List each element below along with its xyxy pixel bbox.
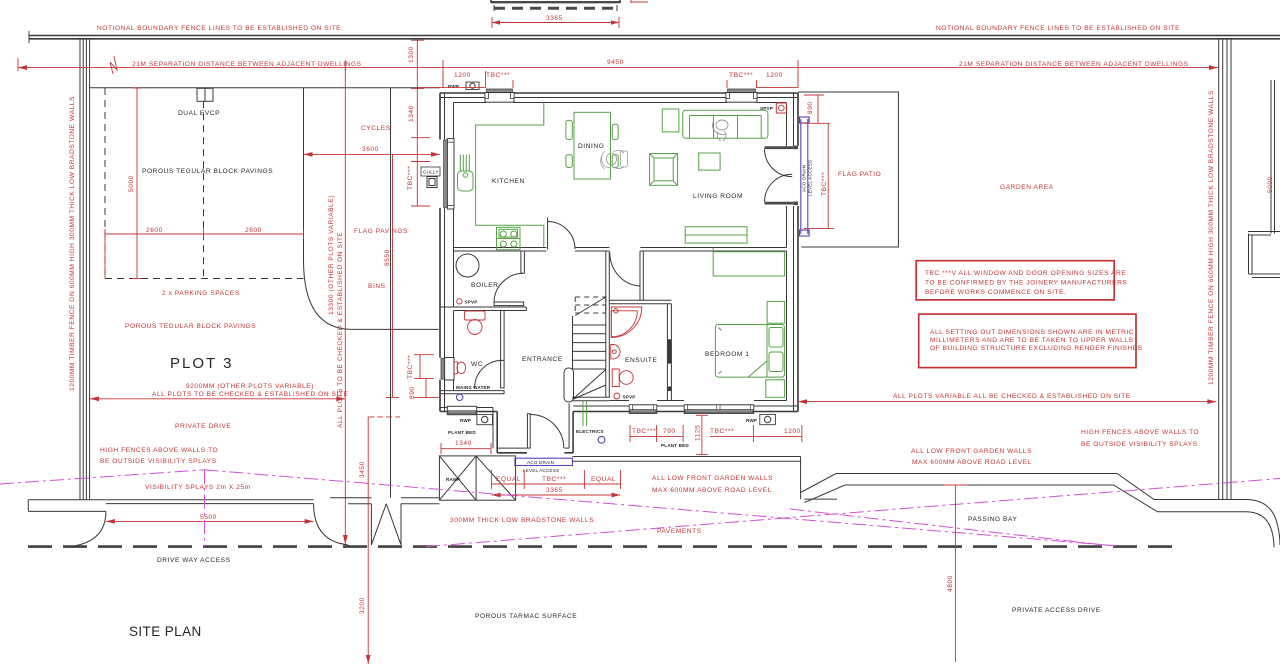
svg-text:1340: 1340 xyxy=(455,440,472,447)
svg-text:SITE PLAN: SITE PLAN xyxy=(129,624,202,639)
svg-text:9200MM (OTHER PLOTS VARIABL: 9200MM (OTHER PLOTS VARIABLE) xyxy=(186,383,314,390)
svg-text:NOTIONAL BOUNDARY FENCE LINES: NOTIONAL BOUNDARY FENCE LINES TO BE ESTA… xyxy=(97,25,341,32)
svg-text:BOILER: BOILER xyxy=(471,282,499,289)
svg-text:ALL LOW FRONT GARDEN WALLS: ALL LOW FRONT GARDEN WALLS xyxy=(911,448,1032,455)
svg-text:3365: 3365 xyxy=(546,487,563,494)
svg-text:TBC***: TBC*** xyxy=(407,166,414,190)
svg-text:ALL PLOTS VARIABLE ALL BE: ALL PLOTS VARIABLE ALL BE CHECKED & ESTA… xyxy=(893,393,1131,400)
svg-text:POROUS TARMAC SURFACE: POROUS TARMAC SURFACE xyxy=(475,613,577,620)
svg-text:EQUAL: EQUAL xyxy=(591,476,616,483)
svg-text:4800: 4800 xyxy=(947,575,954,592)
svg-text:TBC***: TBC*** xyxy=(542,476,566,483)
svg-text:890: 890 xyxy=(807,101,814,114)
svg-text:SPVP: SPVP xyxy=(623,395,636,400)
svg-text:ACO DRAIN: ACO DRAIN xyxy=(527,460,554,465)
svg-text:KITCHEN: KITCHEN xyxy=(492,178,525,185)
svg-text:ENTRANCE: ENTRANCE xyxy=(522,356,563,363)
svg-text:ALL PLOTS TO BE CHECKED &: ALL PLOTS TO BE CHECKED & ESTABLISHED ON… xyxy=(152,391,348,398)
svg-text:GARDEN AREA: GARDEN AREA xyxy=(1000,184,1054,191)
svg-text:ACO DRAIN: ACO DRAIN xyxy=(802,165,807,192)
svg-text:POROUS TEGULAR BLOCK PAVINGS: POROUS TEGULAR BLOCK PAVINGS xyxy=(125,323,256,330)
svg-text:EQUAL: EQUAL xyxy=(496,476,521,483)
svg-text:3600: 3600 xyxy=(362,146,379,153)
svg-text:LIVING ROOM: LIVING ROOM xyxy=(693,193,743,200)
svg-text:DRIVE WAY ACCESS: DRIVE WAY ACCESS xyxy=(157,557,231,564)
svg-text:VISIBILITY SPLAYS 2m X 25m: VISIBILITY SPLAYS 2m X 25m xyxy=(145,484,251,491)
svg-text:5000: 5000 xyxy=(1267,176,1274,193)
svg-text:ALL SETTING OUT DIMENSIONS: ALL SETTING OUT DIMENSIONS SHOWN ARE IN … xyxy=(930,329,1134,336)
svg-text:ENSUITE: ENSUITE xyxy=(625,357,657,364)
svg-text:BE OUTSIDE VISIBILITY SPLAYS: BE OUTSIDE VISIBILITY SPLAYS xyxy=(100,458,217,465)
svg-text:TBC***: TBC*** xyxy=(632,428,656,435)
svg-text:LEVEL ACCESS: LEVEL ACCESS xyxy=(808,160,813,196)
svg-text:RWP: RWP xyxy=(460,418,471,423)
svg-text:3450: 3450 xyxy=(359,461,366,478)
svg-text:9450: 9450 xyxy=(607,59,624,66)
svg-text:TO BE CONFIRMED BY THE JO: TO BE CONFIRMED BY THE JOINERY MANUFACTU… xyxy=(925,280,1127,287)
svg-text:1200: 1200 xyxy=(784,428,801,435)
svg-text:1200: 1200 xyxy=(454,72,471,79)
svg-text:FLAG PAVINGS: FLAG PAVINGS xyxy=(354,228,408,235)
svg-text:5000: 5000 xyxy=(128,175,135,192)
svg-text:PAVEMENTS: PAVEMENTS xyxy=(657,528,702,535)
svg-text:DINING: DINING xyxy=(578,143,604,150)
svg-text:GULLY: GULLY xyxy=(423,170,439,175)
svg-text:POROUS TEGULAR BLOCK PAVING: POROUS TEGULAR BLOCK PAVINGS xyxy=(142,168,273,175)
svg-text:1200MM TIMBER FENCE ON 600MM H: 1200MM TIMBER FENCE ON 600MM HIGH 300MM … xyxy=(69,96,76,391)
svg-text:1200MM TIMBER FENCE ON 600MM H: 1200MM TIMBER FENCE ON 600MM HIGH 300MM … xyxy=(1208,90,1215,385)
svg-text:TBC***: TBC*** xyxy=(407,355,414,379)
svg-text:2600: 2600 xyxy=(245,227,262,234)
svg-text:ELECTRICS: ELECTRICS xyxy=(576,429,604,434)
svg-text:BE OUTSIDE VISIBILITY SPLAYS: BE OUTSIDE VISIBILITY SPLAYS xyxy=(1081,441,1198,448)
svg-text:SPVP: SPVP xyxy=(465,300,478,305)
svg-text:PLANT BED: PLANT BED xyxy=(661,443,689,448)
svg-text:TBC***: TBC*** xyxy=(729,72,753,79)
svg-text:13300 (OTHER PLOTS VARIABLE: 13300 (OTHER PLOTS VARIABLE) xyxy=(328,195,335,315)
svg-text:300MM THICK LOW BRADSTONE WALL: 300MM THICK LOW BRADSTONE WALLS xyxy=(450,517,594,524)
svg-text:MAINS WATER: MAINS WATER xyxy=(456,385,491,390)
svg-text:BINS: BINS xyxy=(368,283,386,290)
svg-text:PASSING BAY: PASSING BAY xyxy=(968,516,1017,523)
svg-text:LEVEL ACCESS: LEVEL ACCESS xyxy=(523,468,559,473)
svg-text:3200: 3200 xyxy=(359,597,366,614)
svg-text:ALL LOW FRONT GARDEN WALLS: ALL LOW FRONT GARDEN WALLS xyxy=(652,475,773,482)
svg-text:TBC***: TBC*** xyxy=(821,172,828,196)
svg-text:21M SEPARATION DISTANCE BET: 21M SEPARATION DISTANCE BETWEEN ADJACENT… xyxy=(132,61,362,68)
svg-text:21M SEPARATION DISTANCE BET: 21M SEPARATION DISTANCE BETWEEN ADJACENT… xyxy=(959,61,1189,68)
svg-text:TBC***: TBC*** xyxy=(486,72,510,79)
svg-text:2 x PARKING SPACES: 2 x PARKING SPACES xyxy=(162,290,240,297)
svg-text:BEDROOM 1: BEDROOM 1 xyxy=(705,351,750,358)
svg-text:HIGH FENCES ABOVE WALLS TO: HIGH FENCES ABOVE WALLS TO xyxy=(100,447,218,454)
svg-text:5500: 5500 xyxy=(200,514,217,521)
svg-text:2600: 2600 xyxy=(146,227,163,234)
svg-text:3365: 3365 xyxy=(546,15,563,22)
svg-text:DUAL EVCP: DUAL EVCP xyxy=(178,110,220,117)
svg-text:MAX 600MM ABOVE ROAD LEVEL: MAX 600MM ABOVE ROAD LEVEL xyxy=(912,459,1032,466)
svg-text:RWP: RWP xyxy=(448,84,459,89)
svg-text:FLAG PATIO: FLAG PATIO xyxy=(838,171,881,178)
svg-text:MAX 600MM ABOVE ROAD LEVEL: MAX 600MM ABOVE ROAD LEVEL xyxy=(652,487,772,494)
svg-text:RAMP: RAMP xyxy=(446,477,460,482)
svg-text:PLOT 3: PLOT 3 xyxy=(170,355,233,372)
svg-text:1300: 1300 xyxy=(408,46,415,63)
svg-text:8550: 8550 xyxy=(384,249,391,266)
svg-text:OF BUILDING STRUCTURE EXCLU: OF BUILDING STRUCTURE EXCLUDING RENDER F… xyxy=(930,345,1143,352)
svg-text:790: 790 xyxy=(663,428,676,435)
svg-text:NOTIONAL BOUNDARY FENCE LINES: NOTIONAL BOUNDARY FENCE LINES TO BE ESTA… xyxy=(936,25,1180,32)
svg-text:TBC ***V ALL WINDOW AND DO: TBC ***V ALL WINDOW AND DOOR OPENING SIZ… xyxy=(925,270,1126,277)
svg-text:RWP: RWP xyxy=(746,418,757,423)
svg-text:1125: 1125 xyxy=(695,425,702,441)
svg-text:BEFORE WORKS COMMENCE ON S: BEFORE WORKS COMMENCE ON SITE. xyxy=(925,289,1066,296)
svg-text:1200: 1200 xyxy=(766,72,783,79)
svg-text:PLANT BED: PLANT BED xyxy=(448,430,476,435)
svg-text:TBC***: TBC*** xyxy=(710,428,734,435)
svg-text:PRIVATE DRIVE: PRIVATE DRIVE xyxy=(175,423,231,430)
svg-text:1340: 1340 xyxy=(408,105,415,122)
svg-text:MILLIMETERS AND ARE TO BE: MILLIMETERS AND ARE TO BE TAKEN TO UPPER… xyxy=(930,337,1134,344)
svg-text:CYCLES: CYCLES xyxy=(361,125,391,132)
svg-text:WC: WC xyxy=(471,361,483,368)
svg-text:PRIVATE ACCESS DRIVE: PRIVATE ACCESS DRIVE xyxy=(1012,607,1101,614)
svg-text:HIGH FENCES ABOVE WALLS TO: HIGH FENCES ABOVE WALLS TO xyxy=(1081,429,1199,436)
svg-text:890: 890 xyxy=(409,386,416,399)
